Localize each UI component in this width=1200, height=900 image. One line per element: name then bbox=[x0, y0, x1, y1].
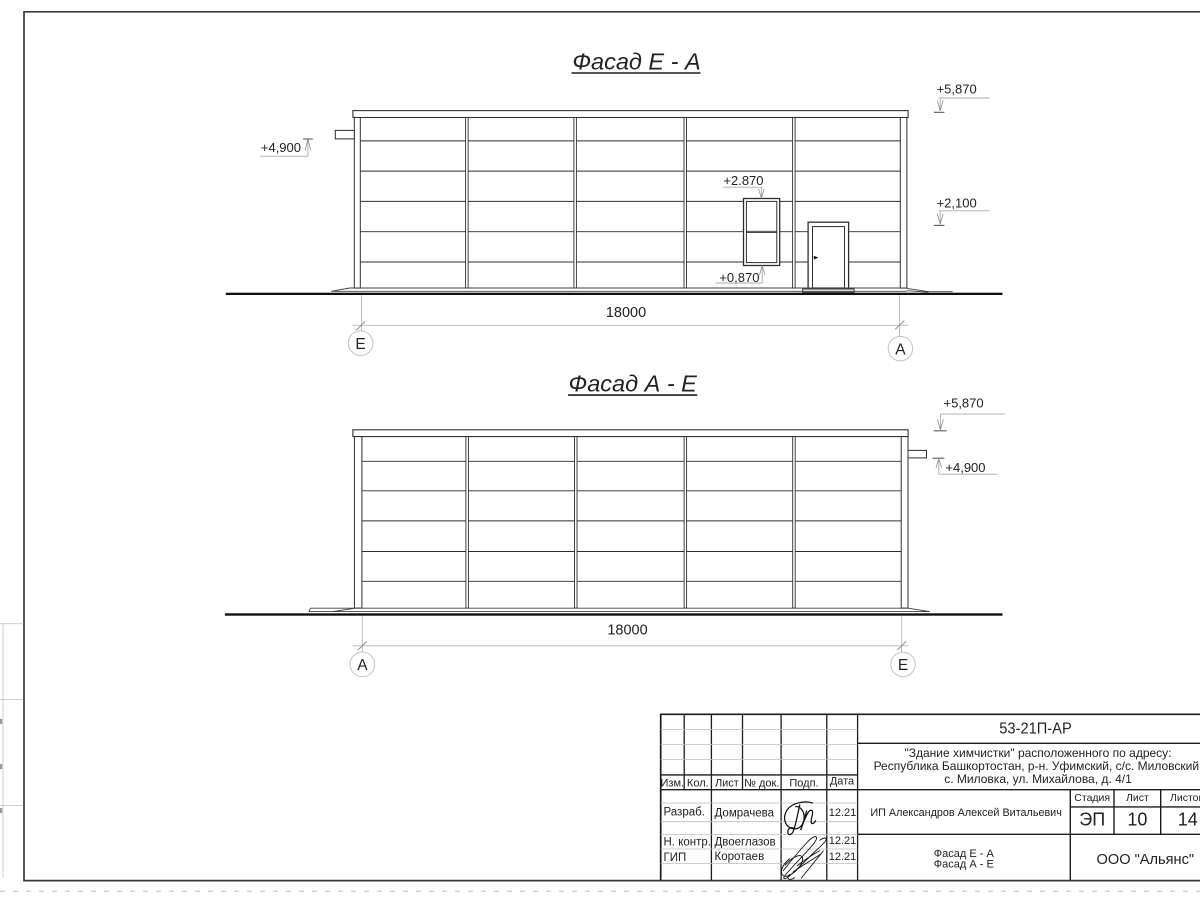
svg-text:Фасад А - Е: Фасад А - Е bbox=[569, 371, 698, 397]
svg-text:Листов: Листов bbox=[1170, 792, 1200, 804]
svg-text:+5,870: +5,870 bbox=[944, 396, 984, 411]
svg-text:53-21П-АР: 53-21П-АР bbox=[999, 720, 1072, 737]
svg-text:Подп.: Подп. bbox=[789, 777, 818, 789]
svg-text:Фасад Е - А: Фасад Е - А bbox=[572, 48, 700, 74]
svg-text:Лист: Лист bbox=[715, 777, 739, 789]
svg-text:10: 10 bbox=[1127, 810, 1147, 830]
svg-text:12.21: 12.21 bbox=[829, 807, 857, 819]
svg-text:Н. контр.: Н. контр. bbox=[664, 836, 711, 848]
svg-text:ИП Александров Алексей Виталье: ИП Александров Алексей Витальевич bbox=[870, 807, 1061, 819]
svg-text:14: 14 bbox=[1178, 810, 1198, 830]
svg-text:Коротаев: Коротаев bbox=[715, 851, 765, 863]
svg-text:18000: 18000 bbox=[606, 305, 646, 321]
svg-text:Е: Е bbox=[355, 336, 365, 353]
svg-text:+2.870: +2.870 bbox=[723, 173, 763, 188]
svg-text:ООО "Альянс": ООО "Альянс" bbox=[1097, 852, 1195, 868]
svg-text:"Здание химчистки" расположенн: "Здание химчистки" расположенного по адр… bbox=[904, 746, 1171, 760]
svg-text:+4,900: +4,900 bbox=[261, 140, 301, 155]
svg-text:Двоеглазов: Двоеглазов bbox=[715, 837, 776, 849]
svg-text:Республика Башкортостан, р-н.: Республика Башкортостан, р-н. Уфимский, … bbox=[874, 759, 1200, 773]
svg-text:№ док.: № док. bbox=[744, 777, 779, 789]
svg-text:А: А bbox=[895, 341, 906, 358]
svg-text:Фасад А - Е: Фасад А - Е bbox=[934, 858, 994, 870]
svg-text:А: А bbox=[357, 657, 368, 674]
svg-text:Изм.: Изм. bbox=[661, 777, 685, 789]
svg-text:Дата: Дата bbox=[830, 775, 855, 787]
svg-text:Лист: Лист bbox=[1126, 792, 1149, 804]
svg-text:Разраб.: Разраб. bbox=[664, 806, 705, 818]
svg-text:18000: 18000 bbox=[607, 623, 647, 639]
svg-text:Стадия: Стадия bbox=[1074, 792, 1110, 804]
svg-text:ЭП: ЭП bbox=[1079, 810, 1105, 830]
svg-text:+5,870: +5,870 bbox=[937, 82, 977, 97]
svg-text:+4,900: +4,900 bbox=[945, 460, 985, 475]
svg-text:12.21: 12.21 bbox=[829, 835, 857, 847]
svg-text:Кол.: Кол. bbox=[687, 777, 709, 789]
svg-text:12.21: 12.21 bbox=[829, 851, 857, 863]
svg-text:с. Миловка, ул. Михайлова, д.: с. Миловка, ул. Михайлова, д. 4/1 bbox=[944, 772, 1132, 786]
svg-text:Е: Е bbox=[898, 657, 908, 674]
svg-text:Домрачева: Домрачева bbox=[715, 808, 775, 820]
svg-text:ГИП: ГИП bbox=[664, 852, 687, 864]
svg-text:+2,100: +2,100 bbox=[937, 196, 977, 211]
